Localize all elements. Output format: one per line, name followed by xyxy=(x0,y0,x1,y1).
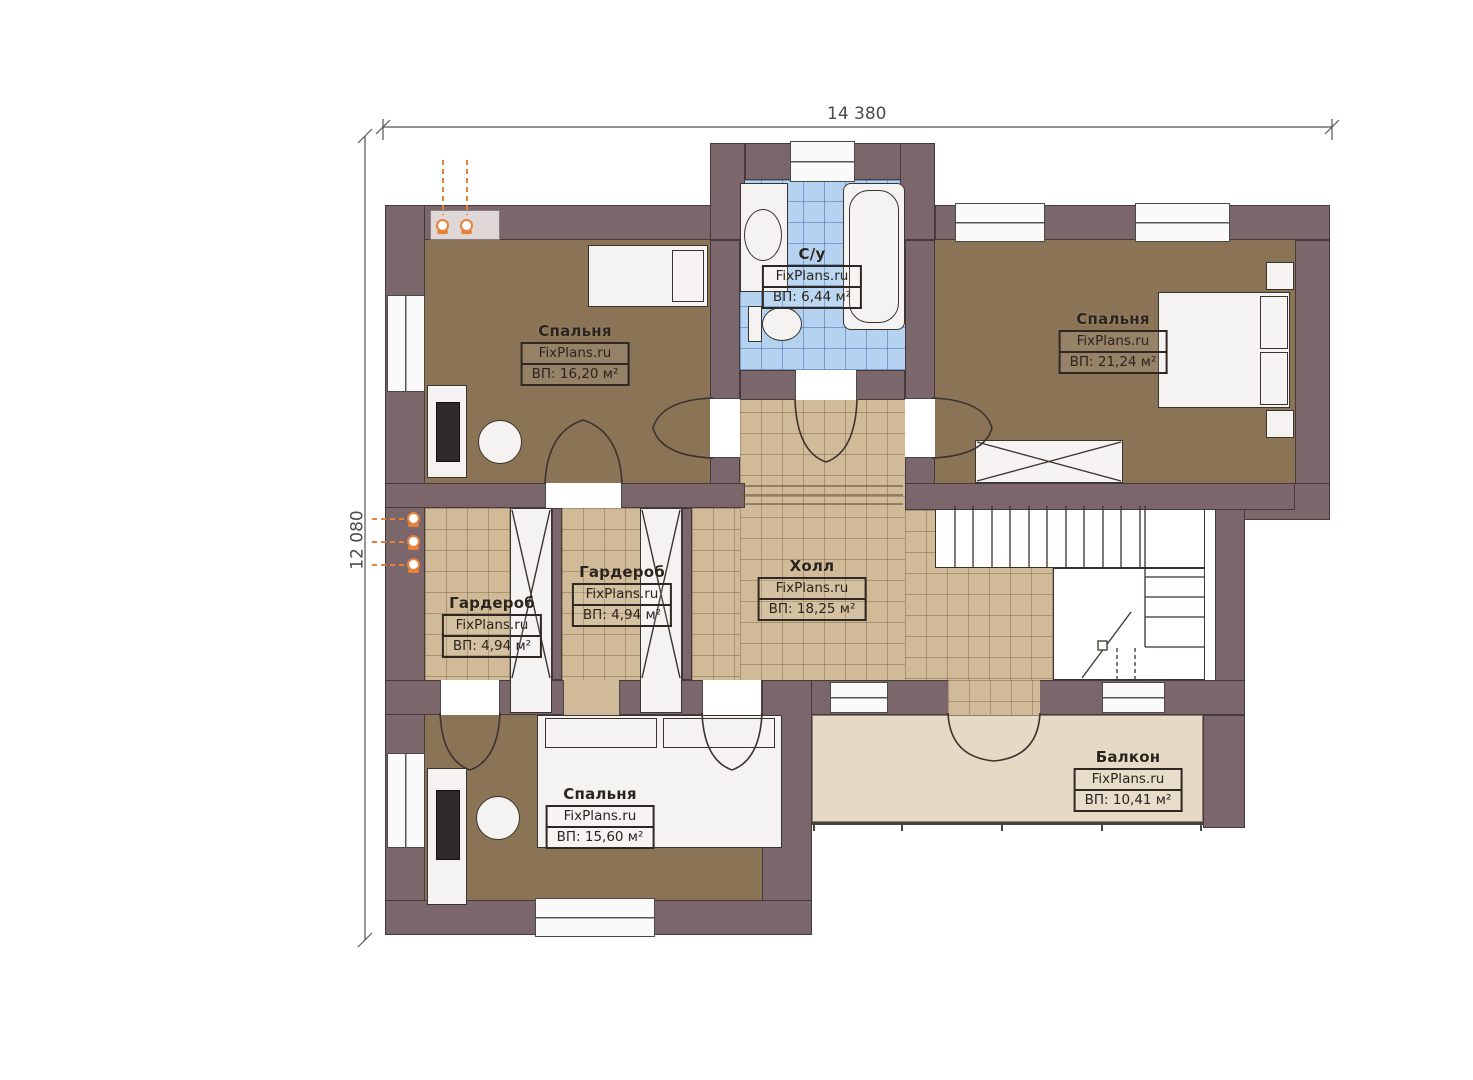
watermark-box: FixPlans.ru xyxy=(758,577,867,600)
watermark-box: FixPlans.ru xyxy=(521,342,630,365)
heating-riser-icon xyxy=(407,512,420,525)
door-opening-bedroomB-right xyxy=(702,680,762,715)
window-hall-balcony-left xyxy=(830,682,888,713)
bed-double-bottom-pillow-2 xyxy=(663,718,775,748)
area-box: ВП: 21,24 м² xyxy=(1059,353,1168,374)
chair-topleft xyxy=(478,420,522,464)
toilet-bowl xyxy=(762,307,802,341)
wall-balcony-right xyxy=(1203,715,1245,828)
dimension-left-label: 12 080 xyxy=(348,510,368,569)
watermark-box: FixPlans.ru xyxy=(1074,768,1183,791)
room-label-bedroom-bottom: Спальня FixPlans.ru ВП: 15,60 м² xyxy=(546,785,655,849)
area-box: ВП: 15,60 м² xyxy=(546,828,655,849)
nightstand-right-1 xyxy=(1266,262,1294,290)
room-name: Спальня xyxy=(521,322,630,340)
area-box: ВП: 4,94 м² xyxy=(442,637,542,658)
door-opening-bedroomR-west xyxy=(905,398,935,458)
room-name: Гардероб xyxy=(442,594,542,612)
window-bedroomTL xyxy=(387,295,425,392)
room-name: Холл xyxy=(758,557,867,575)
wall-right-upper xyxy=(1295,240,1330,520)
room-name: Спальня xyxy=(546,785,655,803)
door-opening-bedroomTL-south xyxy=(545,483,622,508)
watermark-box: FixPlans.ru xyxy=(572,583,672,606)
window-bedroomB-left xyxy=(387,753,425,848)
chair-bottom xyxy=(476,796,520,840)
nightstand-right-2 xyxy=(1266,410,1294,438)
area-box: ВП: 6,44 м² xyxy=(762,288,862,309)
wall-wardrobe-partition-1 xyxy=(552,508,562,680)
monitor-bottom xyxy=(436,790,460,860)
staircase-upper-run xyxy=(935,505,1205,568)
hall-floor-a xyxy=(740,370,905,680)
watermark-box: FixPlans.ru xyxy=(1059,330,1168,353)
watermark-box: FixPlans.ru xyxy=(546,805,655,828)
window-stairs-balcony-right xyxy=(1102,682,1165,713)
wardrobe-cabinet-bedroomR xyxy=(975,440,1123,483)
area-box: ВП: 18,25 м² xyxy=(758,600,867,621)
heating-riser-icon xyxy=(460,219,473,232)
room-label-bedroom-right: Спальня FixPlans.ru ВП: 21,24 м² xyxy=(1059,310,1168,374)
window-bathroom xyxy=(790,141,855,182)
door-opening-bedroomB-left xyxy=(440,680,500,715)
bed-double-right-pillow-1 xyxy=(1260,296,1288,349)
heating-riser-icon xyxy=(407,535,420,548)
wall-bedroomR-south xyxy=(905,483,1295,510)
area-box: ВП: 16,20 м² xyxy=(521,365,630,386)
heating-riser-icon xyxy=(407,558,420,571)
watermark-box: FixPlans.ru xyxy=(442,614,542,637)
window-bedroomR-2 xyxy=(1135,203,1230,242)
wall-bathroom-bump-right xyxy=(900,143,935,240)
room-name: Спальня xyxy=(1059,310,1168,328)
staircase-lower-run xyxy=(1053,568,1205,680)
room-label-wardrobe-left: Гардероб FixPlans.ru ВП: 4,94 м² xyxy=(442,594,542,658)
area-box: ВП: 10,41 м² xyxy=(1074,791,1183,812)
floor-plan: 14 380 12 080 Спальня FixPlans.ru ВП: 16… xyxy=(0,0,1473,1080)
watermark-box: FixPlans.ru xyxy=(762,265,862,288)
door-opening-bedroomTL-east xyxy=(710,398,740,458)
heating-riser-icon xyxy=(436,219,449,232)
bed-single-pillow xyxy=(672,250,704,302)
wall-bedroomTL-bathroom xyxy=(710,240,740,508)
area-box: ВП: 4,94 м² xyxy=(572,606,672,627)
room-name: С/у xyxy=(762,245,862,263)
room-label-balcony: Балкон FixPlans.ru ВП: 10,41 м² xyxy=(1074,748,1183,812)
dimension-top-label: 14 380 xyxy=(827,104,886,124)
wall-wardrobe-partition-2 xyxy=(682,508,692,680)
wall-bathroom-bedroomR xyxy=(905,240,935,508)
room-label-bedroom-topleft: Спальня FixPlans.ru ВП: 16,20 м² xyxy=(521,322,630,386)
monitor-topleft xyxy=(436,402,460,462)
door-opening-wardrobeM xyxy=(563,680,620,715)
hall-floor-b xyxy=(692,508,740,680)
room-name: Балкон xyxy=(1074,748,1183,766)
room-name: Гардероб xyxy=(572,563,672,581)
room-label-hall: Холл FixPlans.ru ВП: 18,25 м² xyxy=(758,557,867,621)
toilet-tank xyxy=(748,306,762,342)
door-opening-bathroom xyxy=(795,370,857,400)
room-label-bathroom: С/у FixPlans.ru ВП: 6,44 м² xyxy=(762,245,862,309)
window-bedroomB-bottom xyxy=(535,898,655,937)
balcony-railing xyxy=(812,822,1203,825)
bed-double-bottom-pillow-1 xyxy=(545,718,657,748)
window-bedroomR-1 xyxy=(955,203,1045,242)
hall-threshold xyxy=(948,680,1040,715)
bed-double-right-pillow-2 xyxy=(1260,352,1288,405)
room-label-wardrobe-middle: Гардероб FixPlans.ru ВП: 4,94 м² xyxy=(572,563,672,627)
